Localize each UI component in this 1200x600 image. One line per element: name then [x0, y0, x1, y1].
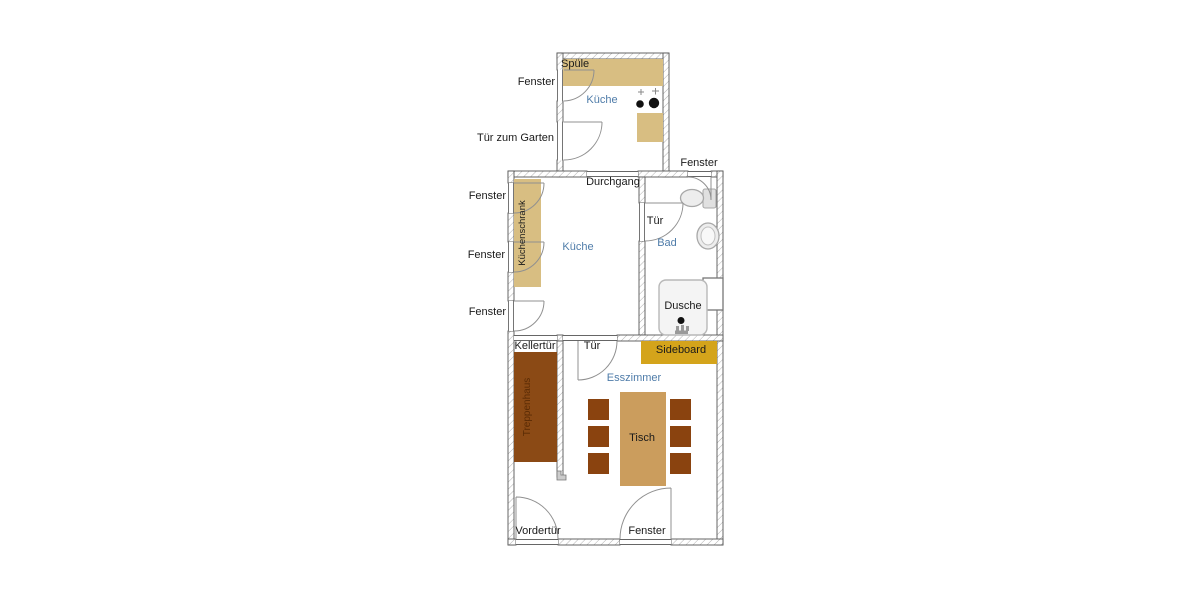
window-label-bottom: Fenster: [628, 525, 666, 537]
room-label-dining: Esszimmer: [607, 372, 662, 384]
wall-bottom-a: [508, 539, 516, 545]
chair: [670, 399, 691, 420]
chair: [588, 426, 609, 447]
shower-faucet-icon: [675, 325, 689, 334]
wall-stairwell-interior: [557, 341, 563, 477]
floor-plan-page: Spüle Fenster Tür zum Garten Küche Durch…: [0, 0, 1200, 600]
wall-mid-bottom-junction: [557, 335, 563, 341]
stove-counter: [637, 113, 663, 142]
wall-right: [717, 171, 723, 545]
wall-bath-divider-b: [639, 241, 645, 335]
window-label-left-1: Fenster: [469, 190, 507, 202]
chair: [588, 453, 609, 474]
wall-bottom-c: [671, 539, 723, 545]
chair: [588, 399, 609, 420]
room-label-bathroom: Bad: [657, 237, 677, 249]
room-label-middle-kitchen: Küche: [562, 241, 593, 253]
sink-icon: [697, 223, 719, 249]
garden-door-swing: [564, 122, 602, 160]
dining-door-label: Tür: [584, 340, 601, 352]
table-label: Tisch: [629, 432, 655, 444]
cabinet-label: Küchenschrank: [517, 200, 528, 266]
sink-label: Spüle: [561, 58, 589, 70]
shower-label: Dusche: [664, 300, 701, 312]
wall-left-b: [508, 213, 514, 242]
wall-left-c: [508, 272, 514, 301]
sideboard-label: Sideboard: [656, 344, 706, 356]
room-label-top-kitchen: Küche: [586, 94, 617, 106]
window-label-top-kitchen: Fenster: [518, 76, 556, 88]
furniture: [514, 59, 717, 486]
cellar-door-label: Kellertür: [515, 340, 556, 352]
window-label-left-3: Fenster: [469, 306, 507, 318]
shower-drain-icon: [678, 317, 685, 324]
wall-top-kitchen-right: [663, 53, 669, 177]
bathroom-door-label: Tür: [647, 215, 664, 227]
wall-middle-top-a: [508, 171, 587, 177]
stairwell-label: Treppenhaus: [522, 378, 533, 437]
wall-top-kitchen-left-b: [557, 101, 563, 122]
window-swing-left-3: [514, 301, 544, 331]
wall-bottom-b: [558, 539, 620, 545]
wall-mid-bottom-right: [617, 335, 723, 341]
garden-door-label: Tür zum Garten: [477, 132, 554, 144]
floor-plan: Spüle Fenster Tür zum Garten Küche Durch…: [0, 0, 1200, 600]
chair: [670, 453, 691, 474]
window-label-left-2: Fenster: [468, 249, 506, 261]
wall-middle-top-b: [638, 171, 688, 177]
wall-left-d: [508, 331, 514, 545]
stove-icon: [636, 88, 659, 108]
window-label-bathroom: Fenster: [680, 157, 718, 169]
chair: [670, 426, 691, 447]
wall-left-a: [508, 171, 514, 183]
stairwell-block: [514, 352, 557, 462]
front-door-label: Vordertür: [515, 525, 561, 537]
passage-label: Durchgang: [586, 176, 640, 188]
